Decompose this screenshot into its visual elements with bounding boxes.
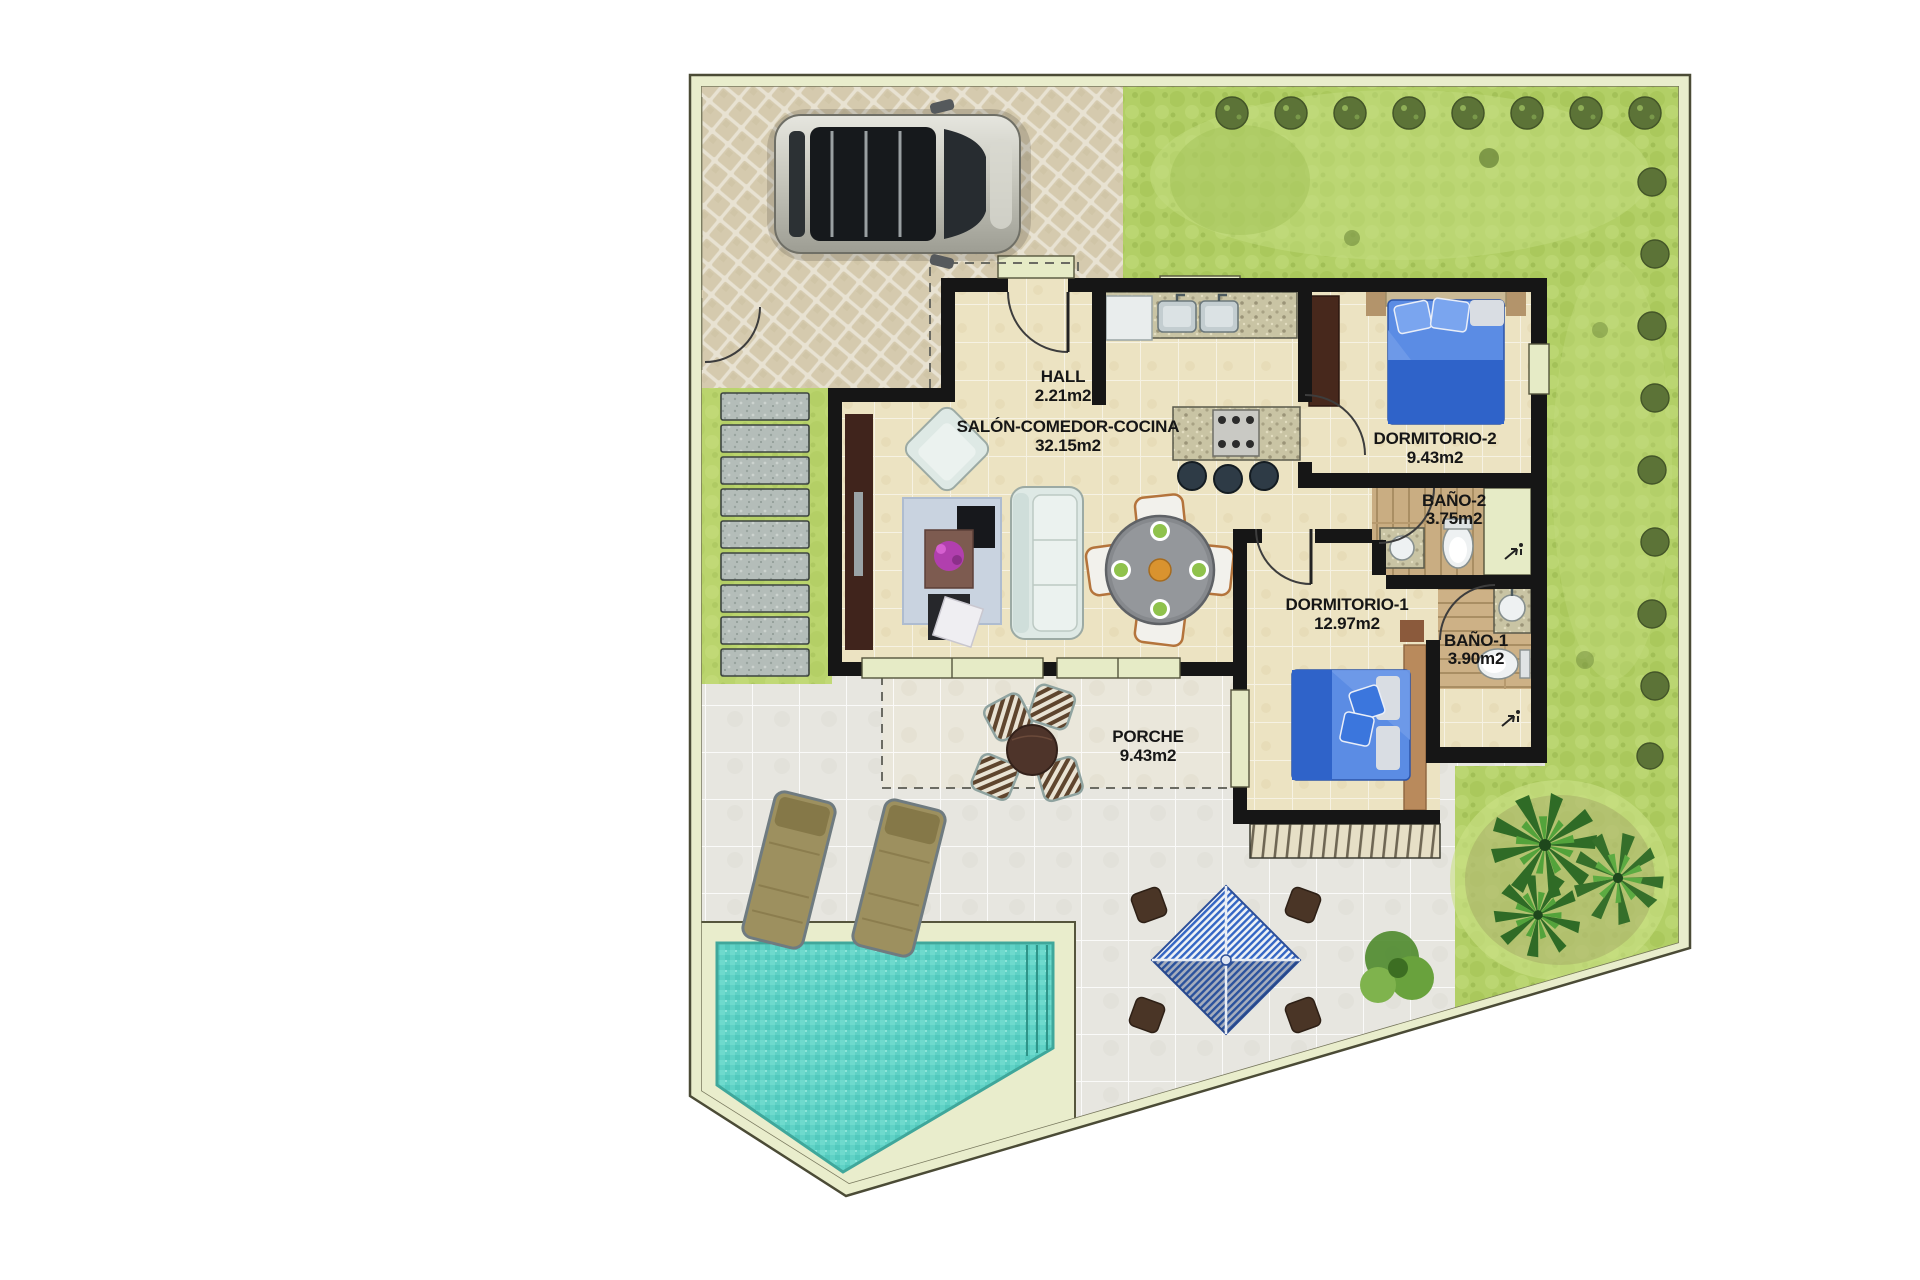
bar-stools [1178,462,1278,493]
label-dormitorio-1-name: DORMITORIO-1 [1286,595,1409,614]
entry-threshold [998,256,1074,278]
pillow [1339,711,1375,747]
car-roof [810,127,936,241]
coffee-table [925,530,973,588]
pillow [1430,298,1470,333]
nightstand [1506,290,1526,316]
pillow [1393,300,1432,334]
floor-plan-stage: HALL 2.21m2 SALÓN-COMEDOR-COCINA 32.15m2… [0,0,1920,1280]
wardrobe-dormitorio-2 [1309,296,1339,406]
label-bano-1-name: BAÑO-1 [1444,630,1508,650]
nightstand [1366,290,1386,316]
pillow-white [1470,300,1504,326]
sofa [1011,487,1083,639]
label-bano-2-area: 3.75m2 [1426,509,1482,528]
label-bano-2-name: BAÑO-2 [1422,490,1486,510]
kitchen-island [1173,407,1300,460]
pergola-dormitorio-1 [1250,824,1440,858]
stepping-stone-path [701,388,832,684]
bano-2-shower-tray [1484,488,1531,575]
parasol-set [1128,886,1322,1034]
label-dormitorio-1-area: 12.97m2 [1314,614,1380,633]
pillow-white [1376,726,1400,770]
label-dormitorio-2-area: 9.43m2 [1407,448,1463,467]
rear-window [789,131,805,237]
hood [990,139,1012,229]
kitchen-cabinet [1106,296,1152,340]
basin [1499,595,1525,621]
bed-dormitorio-2 [1366,288,1526,424]
car [767,98,1031,269]
label-porche-name: PORCHE [1112,727,1184,746]
label-dormitorio-2-name: DORMITORIO-2 [1374,429,1497,448]
label-bano-1-area: 3.90m2 [1448,649,1504,668]
tv [854,492,863,576]
shelf [1400,620,1424,642]
label-hall-name: HALL [1041,367,1086,386]
label-porche-area: 9.43m2 [1120,746,1176,765]
label-hall-area: 2.21m2 [1035,386,1091,405]
swimming-pool [693,922,1075,1196]
floor-plan-drawing: HALL 2.21m2 SALÓN-COMEDOR-COCINA 32.15m2… [0,0,1920,1280]
basin [1390,536,1414,560]
label-salon-area: 32.15m2 [1035,436,1101,455]
label-salon-name: SALÓN-COMEDOR-COCINA [957,417,1180,436]
